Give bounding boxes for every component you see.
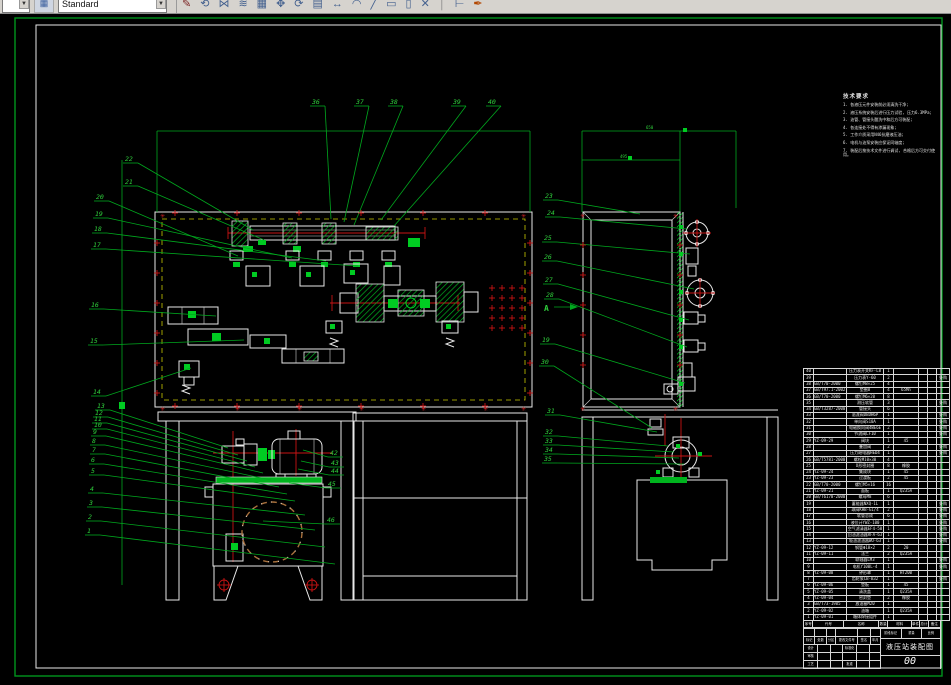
title-block-stage-cell: 重量 (902, 629, 921, 639)
cad-application-window: ▼ ▦ Standard ▼ ✎⟲⋈≋▦✥⟳▤↔◠╱▭▯✕│⊢✒ (0, 0, 951, 685)
callout-number: 35 (543, 455, 552, 463)
bom-cell: 溢流阀DBDH6P (847, 413, 884, 419)
callout-number: 5 (91, 467, 95, 475)
callout-number: 23 (545, 192, 553, 200)
title-block: 阶段标记重量比例 液压站装配图 00 (880, 628, 941, 669)
bom-header-cell: 序号 (803, 620, 813, 628)
callout-number: 1 (87, 527, 91, 535)
callout-number: 18 (94, 225, 102, 233)
bom-cell: GB/T5781-2000 (814, 457, 847, 463)
callout-number: 20 (96, 193, 104, 201)
callout-number: 9 (93, 428, 97, 436)
layer-manager-button[interactable]: ▦ (34, 0, 54, 13)
callout-number: 17 (93, 241, 101, 249)
title-block-cell (858, 629, 870, 637)
title-block-signature-grid: 标记处数分区更改文件号签名年月日设计标准化审核工艺批准 (803, 628, 881, 669)
position-marker: ✳ (359, 406, 364, 413)
title-block-cell (857, 645, 869, 653)
drawing-title: 液压站装配图 (880, 639, 941, 656)
bom-header-cell: 单件 (912, 620, 920, 628)
section-marker-label: A (544, 304, 549, 313)
callout-number: 32 (544, 428, 553, 436)
callout-number: 2 (88, 513, 92, 521)
title-block-cell: 设计 (804, 645, 818, 653)
callout-number: 3 (88, 499, 93, 507)
grid-icon[interactable]: ▤ (313, 0, 323, 13)
power-unit-front-view (119, 402, 356, 600)
title-block-cell (831, 661, 843, 669)
toolbar-separator (176, 0, 177, 13)
callout-number: 43 (331, 459, 339, 467)
bom-table: 40压力表开关KF-L8139压力表Y-602外购38GB/T70-2000螺钉… (803, 368, 950, 621)
title-block-cell (836, 629, 858, 637)
callout-number: 37 (355, 98, 364, 106)
layer-dropdown[interactable]: ▼ (2, 0, 30, 13)
position-marker: ✳ (235, 406, 240, 413)
dimension-label: 495 (620, 154, 628, 159)
callout-number: 24 (547, 209, 555, 217)
measure-icon[interactable]: ⊢ (455, 0, 465, 13)
tech-note-line: 7. 装配后按技术文件进行调试, 合格后方可交付使用。 (843, 149, 943, 158)
pressure-gauge (683, 219, 711, 247)
tech-note-line: 6. 电机与油泵安装应保证同轴度; (843, 141, 943, 145)
bom-cell: 球阀KHB-G1/4 (847, 507, 884, 513)
rect2-icon[interactable]: ▯ (406, 0, 412, 13)
title-block-cell: 更改文件号 (836, 637, 858, 645)
title-block-cell (857, 661, 869, 669)
bom-header-cell: 备注 (929, 620, 941, 628)
position-marker: ✳ (673, 406, 678, 413)
callout-number: 8 (92, 437, 96, 445)
callout-number: 28 (546, 291, 554, 299)
tech-note-line: 3. 油管、管接头酸洗中和后方可装配; (843, 118, 943, 122)
callout-number: 27 (545, 276, 553, 284)
tech-notes: 技术要求 1. 各液压元件安装前必须清洗干净;2. 液压系统安装后进行压力试验,… (843, 94, 943, 160)
chevron-down-icon: ▼ (19, 0, 29, 9)
style-dropdown[interactable]: Standard ▼ (58, 0, 167, 13)
callout-number: 45 (328, 480, 336, 488)
bom-cell: 回油滤油器RFA-63 (847, 532, 884, 538)
bom-cell: GB/T6170-2000 (814, 494, 847, 500)
bom-header-row: 序号代号名称数量材料单件总计备注 (803, 620, 941, 628)
bom-cell: 电磁换向阀4WE6E (847, 425, 884, 431)
tech-notes-title: 技术要求 (843, 94, 943, 100)
chamfer-icon[interactable]: ╱ (371, 0, 378, 13)
callout-number: 22 (125, 155, 133, 163)
drawing-number: 00 (880, 656, 941, 669)
bom-cell: 齿轮泵CB-B32 (847, 576, 884, 582)
title-block-cell (815, 629, 826, 637)
title-block-stage-cell: 阶段标记 (880, 629, 902, 639)
title-block-stage-row: 阶段标记重量比例 (880, 629, 941, 639)
bom-cell: GB/T97.1-2002 (814, 387, 847, 393)
bom-cell: 空气滤清器EF4-50 (847, 526, 884, 532)
callout-number: 42 (330, 449, 338, 457)
title-block-cell (818, 661, 830, 669)
callout-number: 19 (95, 210, 103, 218)
callout-number: 30 (540, 358, 549, 366)
stretch-icon[interactable]: ↔ (332, 0, 343, 13)
position-marker: ✳ (521, 213, 526, 220)
position-marker: ✳ (483, 406, 488, 413)
callout-number: 34 (544, 446, 553, 454)
bom-cell: GB/T3287-2000 (814, 406, 847, 412)
title-block-cell: 批准 (843, 661, 857, 669)
toolbar: ▼ ▦ Standard ▼ ✎⟲⋈≋▦✥⟳▤↔◠╱▭▯✕│⊢✒ (0, 0, 951, 14)
title-block-cell: 标准化 (843, 645, 857, 653)
callout-number: 31 (546, 407, 555, 415)
callout-number: 19 (542, 336, 550, 344)
title-block-cell (831, 645, 843, 653)
brush-icon[interactable]: ✒ (473, 0, 482, 13)
bom-header-cell: 材料 (888, 620, 911, 628)
title-block-cell: 工艺 (804, 661, 818, 669)
toolbar-icons: ✎⟲⋈≋▦✥⟳▤↔◠╱▭▯✕│⊢✒ (182, 0, 483, 13)
position-marker: ✳ (421, 406, 426, 413)
title-block-cell: 处数 (815, 637, 826, 645)
callout-number: 14 (93, 388, 101, 396)
power-unit-side-view (582, 410, 778, 600)
title-block-cell (857, 653, 869, 661)
bom-header-cell: 数量 (879, 620, 888, 628)
callout-number: 26 (544, 253, 552, 261)
bom-cell: 蓄能器NXQ-1L (847, 501, 884, 507)
rect-icon[interactable]: ▭ (386, 0, 396, 13)
lower-valves (168, 307, 458, 394)
callout-number: 7 (92, 446, 96, 454)
tech-note-line: 5. 工作介质采用N46抗磨液压油; (843, 133, 943, 137)
callout-number: 38 (389, 98, 398, 106)
rotate-copy-icon[interactable]: ⟲ (200, 0, 209, 13)
bom-header-cell: 代号 (813, 620, 844, 628)
bom-header-cell: 总计 (920, 620, 928, 628)
position-marker: ✳ (673, 213, 678, 220)
title-block-cell: 分区 (827, 637, 837, 645)
title-block-cell (818, 653, 830, 661)
tech-note-line: 1. 各液压元件安装前必须清洗干净; (843, 103, 943, 107)
title-block-stage-cell: 比例 (922, 629, 941, 639)
position-marker: ✳ (521, 406, 526, 413)
title-block-cell (804, 629, 815, 637)
tech-note-line: 4. 各连接处不得有渗漏现象; (843, 126, 943, 130)
callout-number: 16 (91, 301, 99, 309)
array-icon[interactable]: ▦ (257, 0, 267, 13)
layers-icon: ▦ (40, 0, 49, 8)
position-marker: ✳ (580, 406, 585, 413)
title-block-cell (843, 653, 857, 661)
offset-icon[interactable]: ≋ (238, 0, 247, 13)
callout-leaders: 2221201918171615141312111098765432136373… (85, 98, 694, 564)
chevron-down-icon: ▼ (156, 0, 166, 9)
title-block-cell (827, 629, 837, 637)
bom-cell: 压力表开关KF-L8 (847, 369, 884, 375)
position-marker: ✳ (580, 213, 585, 220)
mirror-icon[interactable]: ⋈ (218, 0, 229, 13)
title-block-cell (831, 653, 843, 661)
position-marker: ✳ (297, 406, 302, 413)
callout-number: 44 (331, 467, 339, 475)
sketch-icon[interactable]: ✎ (182, 0, 191, 13)
explode-icon[interactable]: ✕ (421, 0, 430, 13)
title-block-cell: 标记 (804, 637, 815, 645)
bom-cell: 压力继电器HED4 (847, 450, 884, 456)
callout-number: 36 (311, 98, 320, 106)
position-marker: ✳ (160, 406, 165, 413)
panel-side-view (582, 131, 736, 407)
pressure-gauge (685, 278, 715, 308)
rotate-icon[interactable]: ⟳ (294, 0, 303, 13)
bom-cell: 吸油滤油器WU-63 (847, 539, 884, 545)
callout-number: 25 (544, 234, 552, 242)
title-block-cell: 审核 (804, 653, 818, 661)
callout-number: 6 (91, 456, 95, 464)
callout-number: 15 (90, 337, 98, 345)
move-icon[interactable]: ✥ (276, 0, 285, 13)
callout-number: 39 (452, 98, 461, 106)
callout-number: 21 (125, 178, 133, 186)
tech-note-line: 2. 液压系统安装后进行压力试验, 压力6.3MPa; (843, 111, 943, 115)
callout-number: 40 (488, 98, 496, 106)
dimension-label: 650 (646, 125, 654, 130)
style-dropdown-value: Standard (62, 0, 99, 9)
stand-side-view (353, 413, 527, 600)
position-marker: ✳ (160, 213, 165, 220)
callout-number: 46 (327, 516, 335, 524)
title-block-cell: 签名 (858, 637, 870, 645)
valve-row (230, 251, 400, 286)
bom-cell: 液位计YWZ-100 (847, 520, 884, 526)
callout-number: 33 (544, 437, 553, 445)
fillet-icon[interactable]: ◠ (352, 0, 362, 13)
title-block-cell (818, 645, 830, 653)
bom-header-cell: 名称 (844, 620, 879, 628)
cylinder-assembly (330, 282, 478, 322)
callout-number: 4 (90, 485, 94, 493)
divider-icon[interactable]: │ (439, 0, 446, 13)
